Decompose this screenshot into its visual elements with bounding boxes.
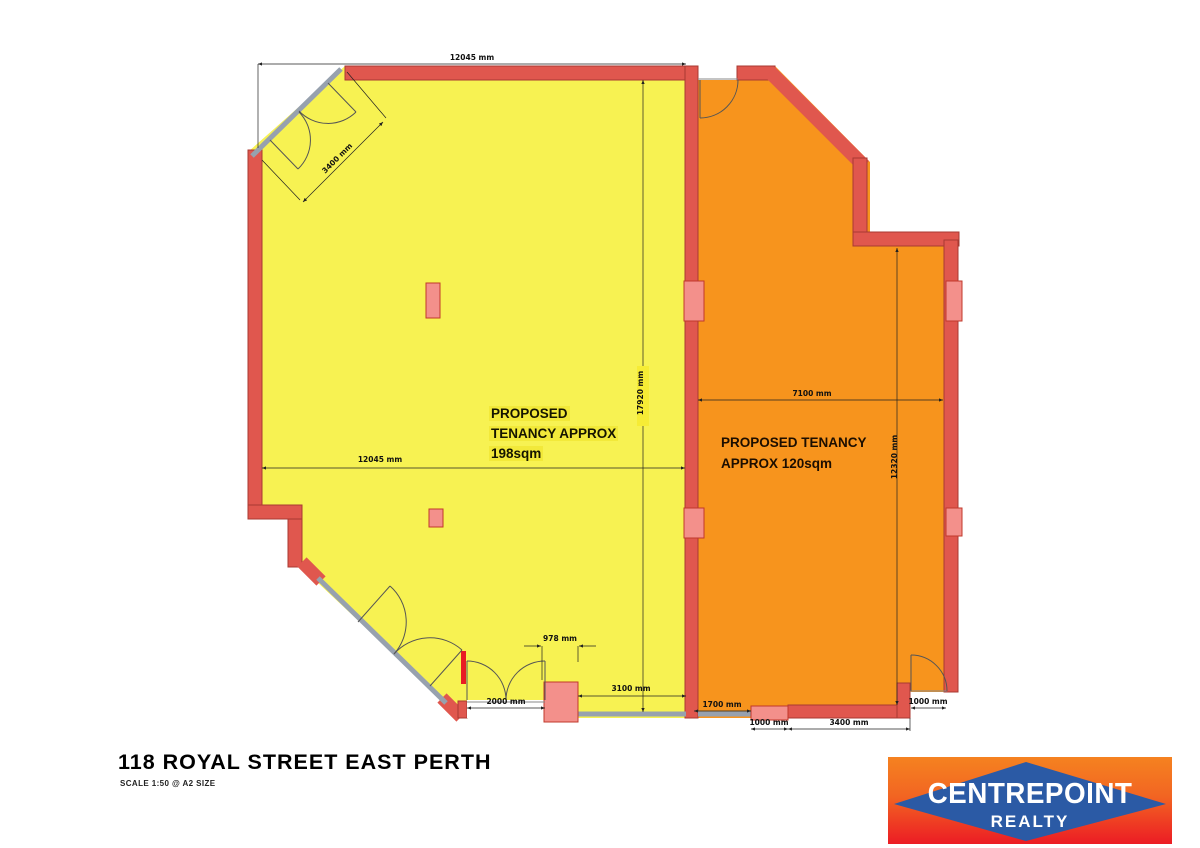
- dim-orange-depth: 12320 mm: [890, 435, 899, 480]
- dim-orange-rear-left: 1700 mm: [702, 700, 741, 709]
- dim-yellow-rear: 3100 mm: [611, 684, 650, 693]
- yellow-tenancy-label-line3: 198sqm: [489, 446, 543, 461]
- floor-areas: [248, 66, 958, 718]
- dividing-wall: [685, 66, 698, 718]
- orange-tenancy-label: PROPOSED TENANCY APPROX 120sqm: [721, 432, 867, 474]
- dim-orange-width: 7100 mm: [792, 389, 831, 398]
- dividing-wall-column-lower: [684, 508, 704, 538]
- right-wall-column-upper: [946, 281, 962, 321]
- dim-pier-width: 978 mm: [543, 634, 577, 643]
- dim-orange-rear-wall: 3400 mm: [829, 718, 868, 727]
- yellow-tenancy-label: PROPOSED TENANCY APPROX 198sqm: [489, 404, 618, 464]
- red-accent-wall-end: [461, 651, 466, 684]
- orange-step-wall: [853, 232, 959, 246]
- yellow-tenancy-floor: [248, 66, 692, 718]
- dividing-wall-column-upper: [684, 281, 704, 321]
- logo-brand-text: CENTREPOINT: [894, 778, 1167, 811]
- yellow-left-jog-wall: [248, 505, 302, 519]
- dim-orange-rear-pier: 1000 mm: [749, 718, 788, 727]
- right-wall-column-lower: [946, 508, 962, 536]
- entry-jamb-wall: [458, 701, 467, 718]
- floor-plan-page: 12045 mm 3400 mm 17920 mm 12045 mm 7100 …: [0, 0, 1200, 848]
- logo-brand-subtext: REALTY: [888, 812, 1172, 832]
- yellow-tenancy-label-line1: PROPOSED: [489, 406, 570, 421]
- dim-yellow-depth: 17920 mm: [636, 371, 645, 416]
- orange-rear-wall: [788, 705, 897, 718]
- yellow-column-upper: [426, 283, 440, 318]
- orange-right-upper-wall: [853, 158, 867, 244]
- yellow-column-lower: [429, 509, 443, 527]
- dim-top-width: 12045 mm: [450, 53, 495, 62]
- page-title: 118 ROYAL STREET EAST PERTH: [118, 750, 492, 775]
- entry-pier-column: [544, 682, 578, 722]
- orange-tenancy-label-line2: APPROX 120sqm: [721, 453, 867, 474]
- dim-orange-side-door: 1000 mm: [908, 697, 947, 706]
- yellow-top-wall: [345, 66, 686, 80]
- yellow-left-jog-wall-2: [288, 519, 302, 567]
- orange-tenancy-label-line1: PROPOSED TENANCY: [721, 432, 867, 453]
- yellow-tenancy-label-line2: TENANCY APPROX: [489, 426, 618, 441]
- scale-note: SCALE 1:50 @ A2 SIZE: [120, 779, 216, 788]
- centrepoint-realty-logo: CENTREPOINT REALTY: [888, 757, 1172, 844]
- yellow-left-wall: [248, 150, 262, 512]
- dim-entry-doors: 2000 mm: [486, 697, 525, 706]
- dim-yellow-mid-width: 12045 mm: [358, 455, 403, 464]
